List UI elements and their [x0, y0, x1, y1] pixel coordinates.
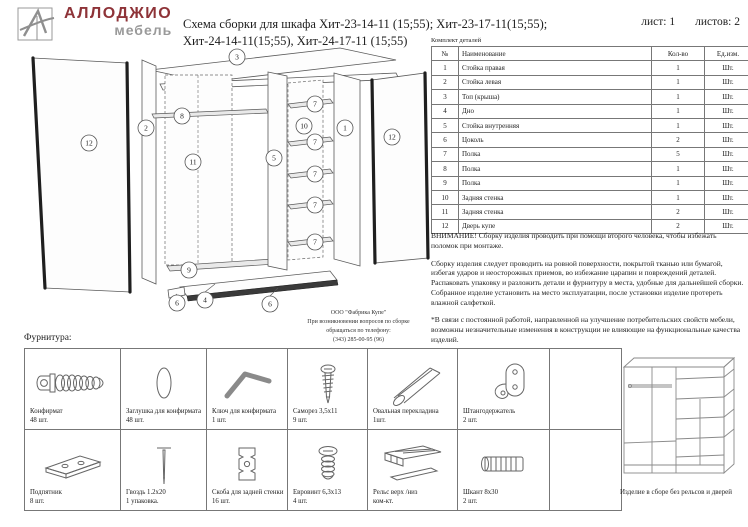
callout-9: 9 [181, 262, 197, 278]
hardware-row: Конфирмат48 шт. Заглушка для конфирмата4… [25, 349, 622, 430]
svg-text:1: 1 [343, 124, 347, 133]
hardware-name: Рельс верх /низ [373, 489, 417, 496]
hardware-qty: 1шт. [373, 417, 386, 424]
hardware-cell: Конфирмат48 шт. [25, 349, 121, 430]
hardware-name: Евровинт 6,3х13 [293, 489, 341, 496]
assembly-instruction-sheet: АЛЛОДЖИО мебель Схема сборки для шкафа Х… [0, 0, 748, 527]
sheet-number: лист: 1 [641, 16, 675, 28]
table-row: 11Задняя стенка2Шт. [432, 205, 748, 219]
document-title: Схема сборки для шкафа Хит-23-14-11 (15;… [183, 16, 563, 50]
right-door-panel [372, 73, 428, 263]
callout-4: 4 [197, 292, 213, 308]
inner-stanchion [268, 72, 287, 270]
left-door-panel [33, 58, 130, 292]
cell: Полка [459, 176, 652, 190]
hardware-cell: Рельс верх /низком-кт. [368, 430, 458, 511]
callout-1: 1 [337, 120, 353, 136]
hardware-name: Саморез 3,5х11 [293, 408, 338, 415]
cell: Шт. [705, 118, 748, 132]
cell: 1 [652, 176, 705, 190]
hardware-name: Ключ для конфирмата [212, 408, 276, 415]
cell: 1 [652, 162, 705, 176]
assembly-line-3: Собранное изделие установить на место эк… [431, 288, 744, 308]
cell: 9 [432, 176, 459, 190]
hardware-qty: 8 шт. [30, 498, 45, 505]
callout-7-2: 7 [307, 134, 323, 150]
table-row: 10Задняя стенка1Шт. [432, 190, 748, 204]
dowel-icon [458, 440, 549, 488]
cell: 1 [652, 75, 705, 89]
cell: 8 [432, 162, 459, 176]
cell: Шт. [705, 133, 748, 147]
svg-text:6: 6 [268, 300, 272, 309]
cell: 1 [652, 190, 705, 204]
hardware-qty: 16 шт. [212, 498, 230, 505]
hardware-row: Подпятник8 шт. Гвоздь 1.2х201 упаковка. [25, 430, 622, 511]
callout-10: 10 [296, 118, 312, 134]
hardware-qty: 9 шт. [293, 417, 308, 424]
hardware-name: Скоба для задней стенки [212, 489, 283, 496]
manufacturer-contact: ООО "Фабрика Купе" При возникновении воп… [276, 309, 441, 345]
hardware-qty: 2 шт. [463, 417, 478, 424]
left-stanchion [142, 60, 156, 284]
cell: 4 [432, 104, 459, 118]
hardware-cell: Заглушка для конфирмата48 шт. [121, 349, 207, 430]
cell: 2 [652, 205, 705, 219]
hardware-qty: 2 шт. [463, 498, 478, 505]
cell: 10 [432, 190, 459, 204]
cell: 5 [432, 118, 459, 132]
nail-icon [121, 440, 206, 488]
brand-subtitle: мебель [114, 23, 172, 38]
cell: 6 [432, 133, 459, 147]
manufacturer-note-2: обращаться по телефону: [276, 327, 441, 336]
hardware-cell: Овальная перекладина1шт. [368, 349, 458, 430]
svg-text:5: 5 [272, 154, 276, 163]
cell: Полка [459, 147, 652, 161]
hardware-name: Овальная перекладина [373, 408, 439, 415]
back-panel-wide [165, 75, 232, 265]
cell: 3 [432, 90, 459, 104]
svg-text:8: 8 [180, 112, 184, 121]
hardware-cell: Ключ для конфирмата1 шт. [207, 349, 288, 430]
svg-text:7: 7 [313, 170, 317, 179]
assembly-line-2: Распаковать упаковку и разложить детали … [431, 278, 744, 288]
back-wall-bracket-icon [207, 440, 287, 488]
right-stanchion [334, 73, 360, 266]
manufacturer-name: ООО "Фабрика Купе" [276, 309, 441, 318]
hardware-cell-empty [550, 349, 622, 430]
svg-text:12: 12 [85, 139, 93, 148]
assembled-view-caption: Изделие в сборе без рельсов и дверей [604, 488, 748, 496]
hardware-qty: 48 шт. [30, 417, 48, 424]
table-row: 1Стойка правая1Шт. [432, 61, 748, 75]
brand-name: АЛЛОДЖИО [64, 6, 172, 23]
hardware-cell-empty [550, 430, 622, 511]
hardware-cell: Скоба для задней стенки16 шт. [207, 430, 288, 511]
assembled-product-drawing [616, 351, 746, 487]
col-num: № [432, 47, 459, 61]
table-row: 2Стойка левая1Шт. [432, 75, 748, 89]
cell: Стойка правая [459, 61, 652, 75]
cell: 11 [432, 205, 459, 219]
cell: Стойка левая [459, 75, 652, 89]
cell: Шт. [705, 61, 748, 75]
callout-7-5: 7 [307, 234, 323, 250]
parts-table-header: № Наименование Кол-во Ед.изм. [432, 47, 748, 61]
hardware-qty: 48 шт. [126, 417, 144, 424]
svg-text:10: 10 [300, 122, 308, 131]
col-qty: Кол-во [652, 47, 705, 61]
svg-text:7: 7 [313, 238, 317, 247]
assembly-line-1: Сборку изделия следует проводить на ровн… [431, 259, 744, 279]
hardware-qty: 1 упаковка. [126, 498, 159, 505]
title-line-1: Схема сборки для шкафа Хит-23-14-11 (15;… [183, 16, 563, 33]
logo-monogram-icon [16, 6, 56, 44]
cell: 5 [652, 147, 705, 161]
cell: Дно [459, 104, 652, 118]
callout-7-3: 7 [307, 166, 323, 182]
cell: Топ (крыша) [459, 90, 652, 104]
callout-12-left: 12 [81, 135, 97, 151]
hardware-name: Гвоздь 1.2х20 [126, 489, 166, 496]
manufacturer-note-1: При возникновении вопросов по сборке [276, 318, 441, 327]
hardware-cell: Подпятник8 шт. [25, 430, 121, 511]
callout-6-left: 6 [169, 295, 185, 311]
rail-icon [368, 440, 457, 488]
svg-text:4: 4 [203, 296, 207, 305]
hardware-section-title: Фурнитура: [24, 333, 72, 343]
cell: Шт. [705, 176, 748, 190]
hardware-cell: Саморез 3,5х119 шт. [288, 349, 368, 430]
sheets-total: листов: 2 [695, 16, 740, 28]
cell: 2 [652, 133, 705, 147]
cell: 1 [652, 118, 705, 132]
hardware-table: Конфирмат48 шт. Заглушка для конфирмата4… [24, 348, 622, 511]
callout-12-right: 12 [384, 129, 400, 145]
cell: Шт. [705, 90, 748, 104]
hardware-name: Подпятник [30, 489, 62, 496]
confirmat-screw-icon [25, 359, 120, 407]
cell: Шт. [705, 75, 748, 89]
foot-plate-icon [25, 440, 120, 488]
rod-holder-icon [458, 359, 549, 407]
warning-text: ВНИМАНИЕ! Сборку изделия проводить при п… [431, 231, 744, 251]
hardware-cell: Штангодержатель2 шт. [458, 349, 550, 430]
parts-table: № Наименование Кол-во Ед.изм. 1Стойка пр… [431, 46, 748, 234]
cell: Шт. [705, 162, 748, 176]
callout-5: 5 [266, 150, 282, 166]
table-row: 4Дно1Шт. [432, 104, 748, 118]
parts-table-caption: Комплект деталей [431, 37, 481, 44]
hardware-cell: Евровинт 6,3х134 шт. [288, 430, 368, 511]
hardware-name: Шкант 8х30 [463, 489, 498, 496]
callout-2: 2 [138, 120, 154, 136]
callout-3: 3 [229, 49, 245, 65]
svg-text:7: 7 [313, 100, 317, 109]
cell: Шт. [705, 104, 748, 118]
col-name: Наименование [459, 47, 652, 61]
cell: Стойка внутренняя [459, 118, 652, 132]
svg-text:3: 3 [235, 53, 239, 62]
callout-8: 8 [174, 108, 190, 124]
sheet-info: лист: 1 листов: 2 [641, 16, 740, 28]
cell: Задняя стенка [459, 190, 652, 204]
svg-text:12: 12 [388, 133, 396, 142]
cell: Задняя стенка [459, 205, 652, 219]
cell: 1 [432, 61, 459, 75]
callout-7-4: 7 [307, 197, 323, 213]
table-row: 9Полка1Шт. [432, 176, 748, 190]
hardware-qty: 1 шт. [212, 417, 227, 424]
hex-key-icon [207, 359, 287, 407]
euro-screw-icon [288, 440, 367, 488]
table-row: 8Полка1Шт. [432, 162, 748, 176]
hardware-cell: Шкант 8х302 шт. [458, 430, 550, 511]
cell: Цоколь [459, 133, 652, 147]
cell: Полка [459, 162, 652, 176]
table-row: 3Топ (крыша)1Шт. [432, 90, 748, 104]
col-unit: Ед.изм. [705, 47, 748, 61]
table-row: 7Полка5Шт. [432, 147, 748, 161]
hardware-qty: ком-кт. [373, 498, 393, 505]
hardware-name: Конфирмат [30, 408, 63, 415]
table-row: 5Стойка внутренняя1Шт. [432, 118, 748, 132]
cell: 7 [432, 147, 459, 161]
self-tapping-screw-icon [288, 359, 367, 407]
svg-text:7: 7 [313, 138, 317, 147]
assembly-instructions: Сборку изделия следует проводить на ровн… [431, 259, 744, 308]
cell: Шт. [705, 190, 748, 204]
manufacturer-phone: (343) 285-00-95 (96) [276, 336, 441, 345]
company-logo: АЛЛОДЖИО мебель [16, 6, 172, 44]
callout-11: 11 [185, 154, 201, 170]
hardware-name: Заглушка для конфирмата [126, 408, 201, 415]
svg-text:6: 6 [175, 299, 179, 308]
table-row: 6Цоколь2Шт. [432, 133, 748, 147]
svg-text:9: 9 [187, 266, 191, 275]
cell: 2 [432, 75, 459, 89]
cell: 1 [652, 104, 705, 118]
notices-block: ВНИМАНИЕ! Сборку изделия проводить при п… [431, 231, 744, 353]
hardware-name: Штангодержатель [463, 408, 515, 415]
cell: 1 [652, 90, 705, 104]
disclaimer-text: *В связи с постоянной работой, направлен… [431, 315, 744, 344]
cell: Шт. [705, 205, 748, 219]
oval-rod-icon [368, 359, 457, 407]
callout-7-1: 7 [307, 96, 323, 112]
svg-text:11: 11 [189, 158, 196, 167]
cap-icon [121, 359, 206, 407]
cell: 1 [652, 61, 705, 75]
hardware-qty: 4 шт. [293, 498, 308, 505]
cell: Шт. [705, 147, 748, 161]
exploded-assembly-diagram: 3 12 2 8 11 9 6 4 6 5 10 7 7 7 7 7 1 12 [10, 46, 435, 342]
svg-text:2: 2 [144, 124, 148, 133]
svg-text:7: 7 [313, 201, 317, 210]
hardware-cell: Гвоздь 1.2х201 упаковка. [121, 430, 207, 511]
